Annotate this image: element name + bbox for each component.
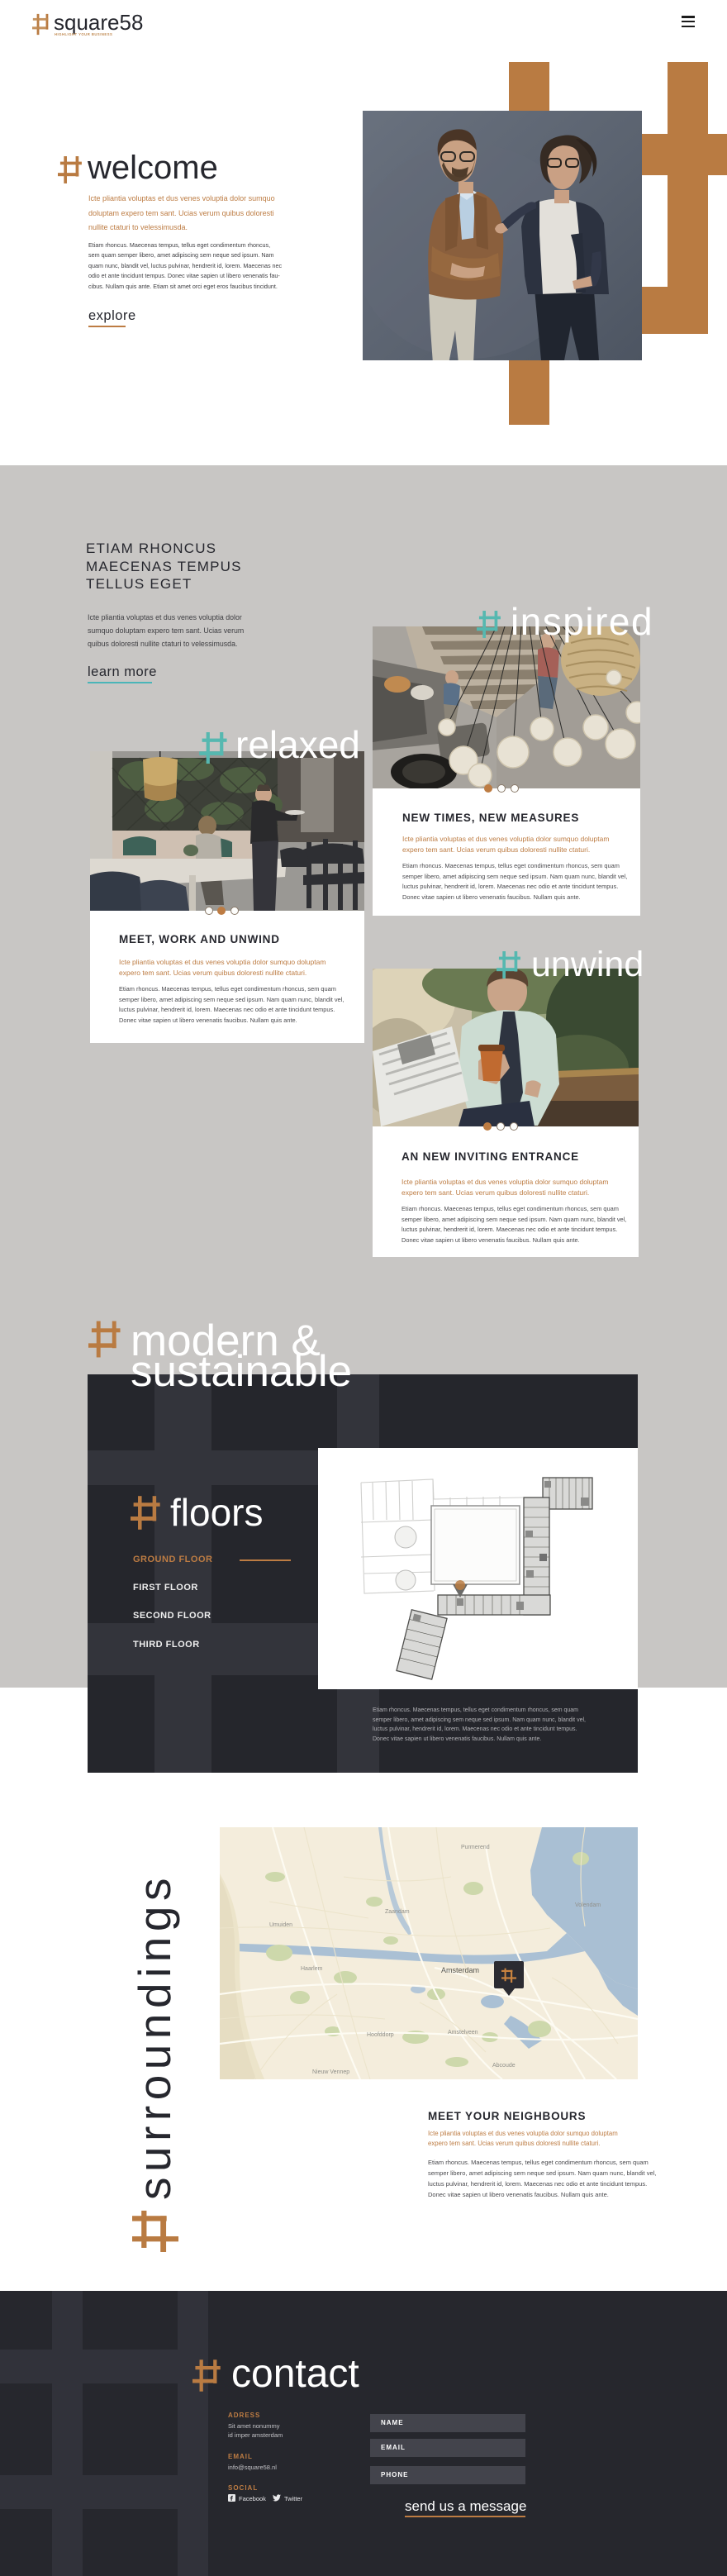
svg-text:Haarlem: Haarlem (301, 1966, 323, 1972)
svg-text:Hoofddorp: Hoofddorp (367, 2032, 394, 2038)
svg-text:Volendam: Volendam (575, 1902, 601, 1908)
svg-text:Amsterdam: Amsterdam (441, 1966, 479, 1974)
svg-text:Abcoude: Abcoude (492, 2063, 516, 2069)
svg-text:Amstelveen: Amstelveen (448, 2030, 478, 2036)
svg-text:Purmerend: Purmerend (461, 1845, 490, 1850)
svg-text:Zaandam: Zaandam (385, 1909, 410, 1915)
svg-text:Nieuw Vennep: Nieuw Vennep (312, 2069, 349, 2075)
svg-text:Umuiden: Umuiden (269, 1922, 292, 1928)
